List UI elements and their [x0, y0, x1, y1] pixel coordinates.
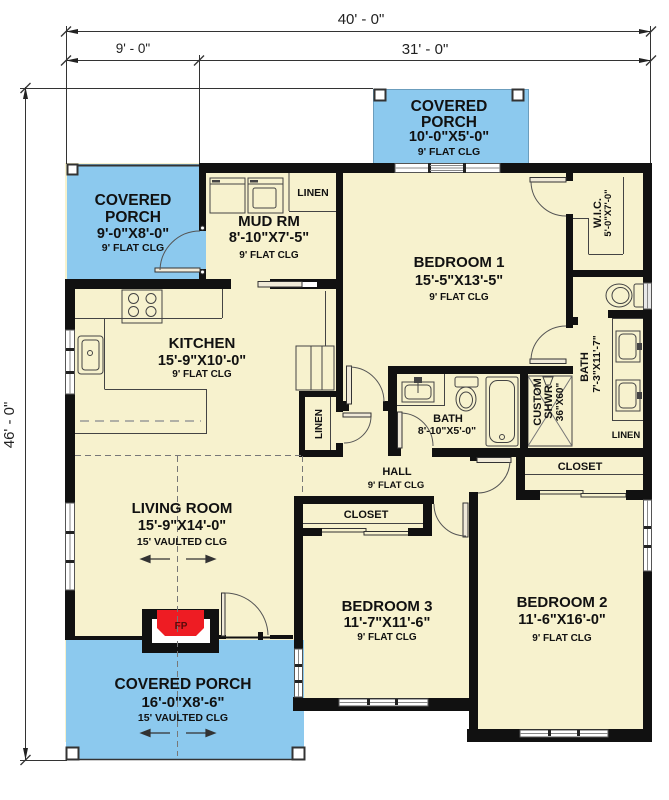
- svg-text:BEDROOM 2: BEDROOM 2: [517, 594, 608, 611]
- svg-text:SHWR: SHWR: [543, 385, 555, 419]
- svg-text:5'-0"X7'-0": 5'-0"X7'-0": [603, 189, 614, 236]
- svg-text:11'-7"X11'-6": 11'-7"X11'-6": [344, 615, 431, 631]
- svg-text:9' FLAT CLG: 9' FLAT CLG: [368, 480, 424, 491]
- svg-text:9' FLAT CLG: 9' FLAT CLG: [239, 250, 299, 261]
- svg-text:CLOSET: CLOSET: [558, 461, 603, 473]
- svg-text:15' VAULTED CLG: 15' VAULTED CLG: [138, 712, 228, 724]
- svg-text:COVERED: COVERED: [411, 98, 488, 115]
- svg-text:40' - 0": 40' - 0": [338, 11, 385, 28]
- svg-text:9' FLAT CLG: 9' FLAT CLG: [429, 292, 489, 303]
- svg-text:LINEN: LINEN: [314, 409, 325, 439]
- svg-text:9' FLAT CLG: 9' FLAT CLG: [532, 633, 592, 644]
- svg-text:9' FLAT CLG: 9' FLAT CLG: [418, 146, 480, 158]
- svg-text:31' - 0": 31' - 0": [402, 41, 449, 58]
- svg-text:9' FLAT CLG: 9' FLAT CLG: [102, 242, 164, 254]
- svg-text:46' - 0": 46' - 0": [1, 402, 18, 449]
- svg-text:COVERED: COVERED: [95, 192, 172, 209]
- svg-text:9' FLAT CLG: 9' FLAT CLG: [172, 369, 232, 380]
- svg-text:MUD RM: MUD RM: [238, 213, 300, 230]
- svg-text:LINEN: LINEN: [612, 430, 641, 441]
- svg-text:9' FLAT CLG: 9' FLAT CLG: [357, 632, 417, 643]
- svg-text:FP: FP: [175, 621, 188, 632]
- svg-text:COVERED PORCH: COVERED PORCH: [115, 676, 252, 693]
- svg-text:BEDROOM 3: BEDROOM 3: [342, 598, 433, 615]
- svg-text:PORCH: PORCH: [105, 209, 161, 226]
- svg-text:LIVING ROOM: LIVING ROOM: [132, 500, 233, 517]
- svg-text:8'-10"X5'-0": 8'-10"X5'-0": [418, 425, 476, 437]
- svg-text:BEDROOM 1: BEDROOM 1: [414, 254, 505, 271]
- svg-text:8'-10"X7'-5": 8'-10"X7'-5": [229, 230, 309, 246]
- svg-text:15' VAULTED CLG: 15' VAULTED CLG: [137, 536, 227, 548]
- svg-text:10'-0"X5'-0": 10'-0"X5'-0": [409, 129, 489, 145]
- svg-text:11'-6"X16'-0": 11'-6"X16'-0": [518, 612, 606, 628]
- svg-text:LINEN: LINEN: [297, 187, 329, 199]
- svg-text:9'-0"X8'-0": 9'-0"X8'-0": [97, 226, 169, 242]
- svg-text:15'-9"X10'-0": 15'-9"X10'-0": [158, 353, 246, 369]
- svg-text:16'-0"X8'-6": 16'-0"X8'-6": [141, 694, 224, 711]
- svg-text:15'-5"X13'-5": 15'-5"X13'-5": [415, 273, 503, 289]
- svg-text:7'-3"X11'-7": 7'-3"X11'-7": [591, 335, 603, 393]
- svg-text:36"X60": 36"X60": [555, 383, 566, 422]
- svg-text:HALL: HALL: [382, 466, 412, 478]
- svg-text:9' - 0": 9' - 0": [116, 41, 151, 56]
- svg-text:KITCHEN: KITCHEN: [169, 335, 236, 352]
- svg-text:BATH: BATH: [579, 352, 591, 382]
- svg-text:BATH: BATH: [433, 413, 463, 425]
- svg-text:15'-9"X14'-0": 15'-9"X14'-0": [138, 518, 226, 534]
- svg-text:CLOSET: CLOSET: [344, 509, 389, 521]
